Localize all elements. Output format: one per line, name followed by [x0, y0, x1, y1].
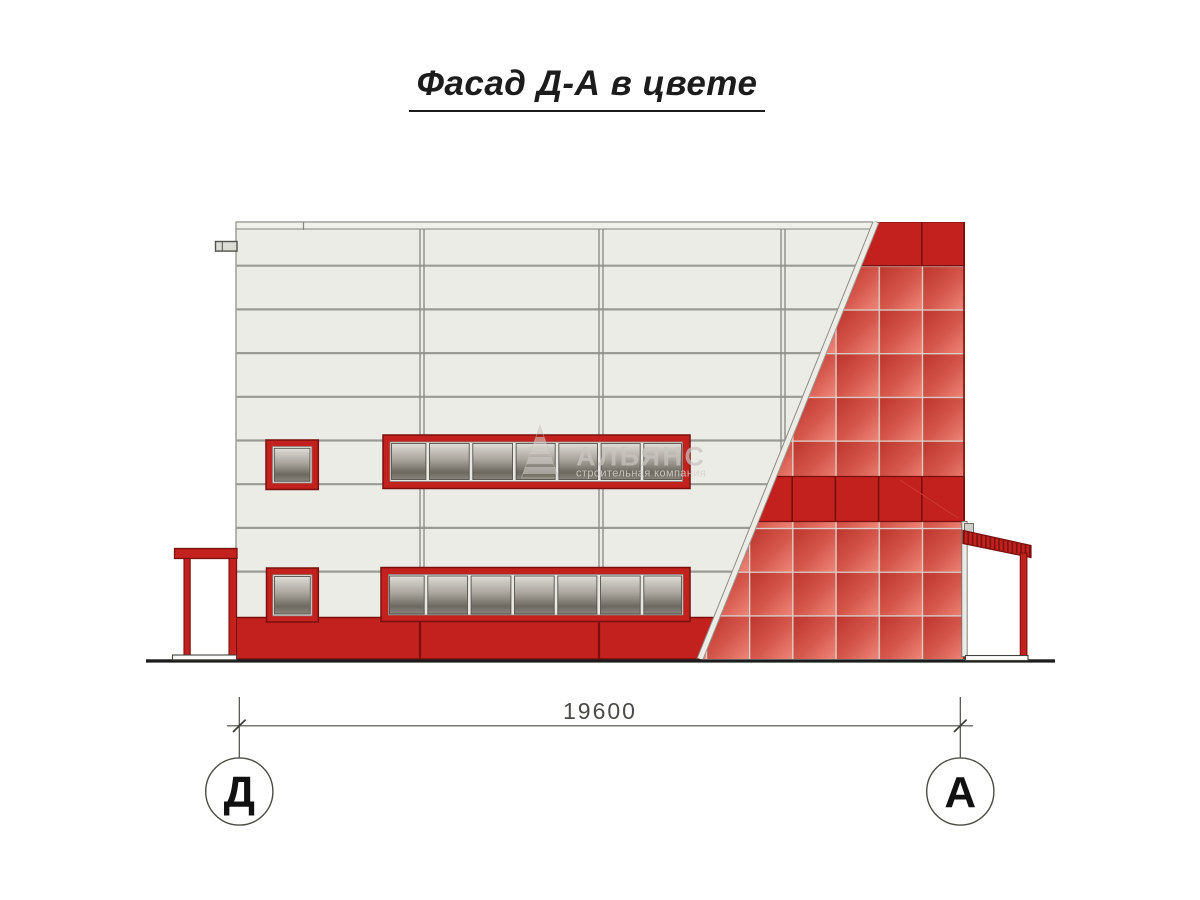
glass-pane	[473, 444, 513, 480]
glass-pane	[515, 576, 555, 614]
facade-drawing-canvas: Фасад Д-А в цвете	[0, 0, 1200, 900]
dimension: 19600	[227, 697, 973, 758]
right-canopy-base	[966, 656, 1029, 661]
window-band-lower	[381, 568, 690, 622]
roof-pipe	[216, 242, 238, 252]
facade-drawing: АЛЬЯНС строительная компания	[0, 0, 1200, 900]
dimension-value: 19600	[563, 698, 637, 724]
pipe-outlet	[216, 242, 238, 252]
axis-label-right: А	[944, 768, 976, 817]
red-accent-band-middle	[755, 477, 965, 522]
glass-pane	[274, 448, 310, 481]
window-small-upper	[266, 440, 318, 490]
canopy-post	[1020, 553, 1027, 656]
canopy-roof	[175, 549, 238, 559]
left-canopy-base	[173, 655, 237, 660]
glass-pane	[275, 577, 311, 615]
glass-pane	[644, 576, 682, 614]
left-canopy	[175, 549, 238, 656]
right-canopy	[963, 524, 1031, 657]
glass-pane	[430, 444, 470, 480]
watermark-tagline: строительная компания	[576, 468, 706, 480]
glass-pane	[390, 576, 425, 614]
parapet-cap	[236, 222, 876, 229]
glass-pane	[471, 576, 511, 614]
axis-label-left: Д	[224, 768, 255, 817]
canopy-post	[184, 559, 190, 656]
plinth-band	[236, 618, 717, 660]
glass-pane	[601, 576, 641, 614]
glass-pane	[428, 576, 468, 614]
axis-markers: Д А	[206, 758, 994, 825]
ground-line	[146, 659, 1055, 662]
glass-pane	[392, 444, 426, 480]
wall-pilaster-red	[229, 559, 237, 656]
glass-pane	[558, 576, 597, 614]
window-small-lower	[267, 568, 319, 622]
plinth	[236, 618, 717, 660]
